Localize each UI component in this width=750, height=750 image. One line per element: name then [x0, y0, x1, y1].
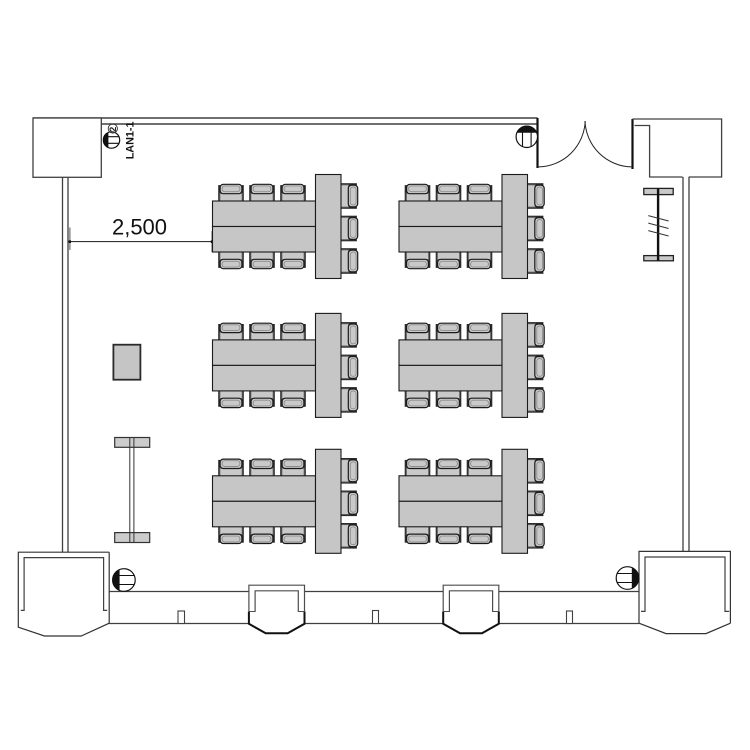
svg-text:2,500: 2,500 [112, 215, 167, 240]
svg-text:2: 2 [108, 127, 118, 132]
svg-text:LAN1-1: LAN1-1 [124, 122, 136, 160]
